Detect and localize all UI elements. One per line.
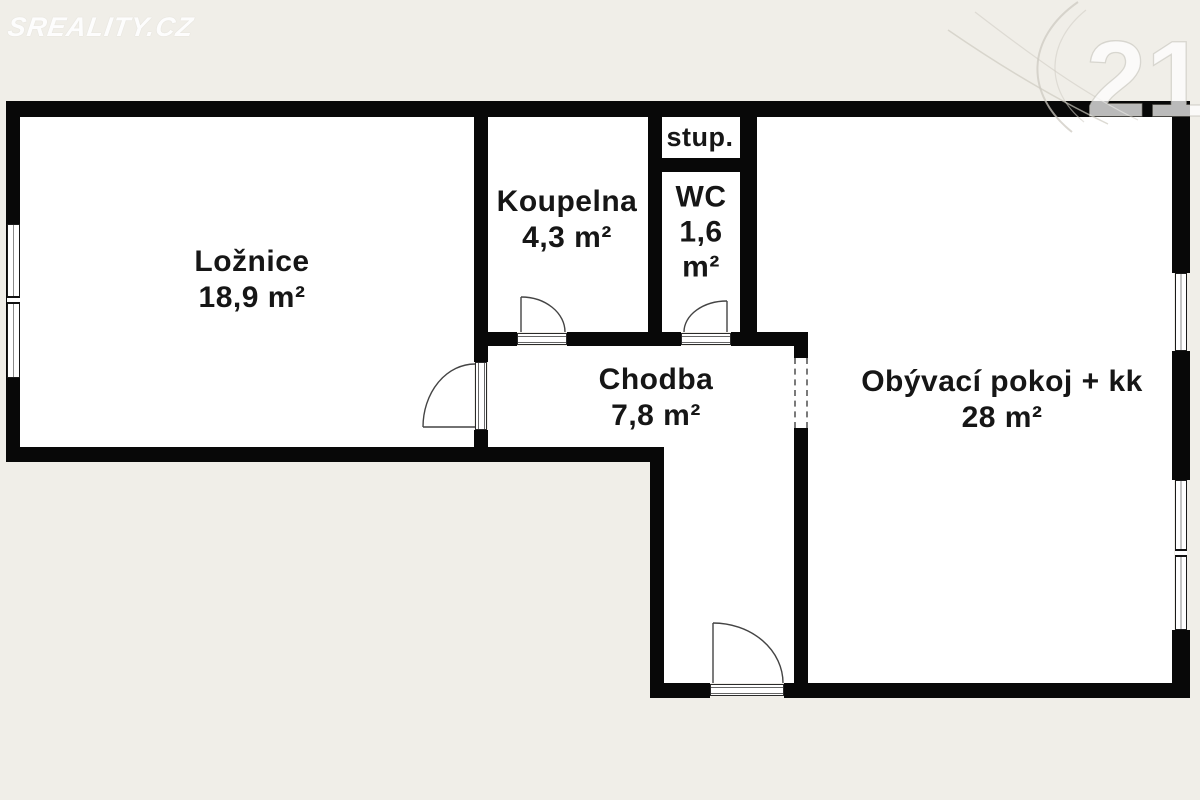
door-frame-entrance xyxy=(710,684,784,696)
wall-loznice-koupelna-upper xyxy=(474,116,488,362)
wall-top xyxy=(6,101,1190,117)
label-obyvaci: Obývací pokoj + kk 28 m² xyxy=(861,364,1143,436)
wall-wc-obyvaci xyxy=(740,116,757,332)
wall-loznice-koupelna-lower xyxy=(474,430,488,447)
wall-right-lower xyxy=(1172,630,1190,698)
wall-bottom-left-of-door xyxy=(650,683,710,698)
door-frame-wc xyxy=(681,333,731,345)
label-obyvaci-name: Obývací pokoj + kk xyxy=(861,364,1143,400)
wall-stup-bottom xyxy=(662,158,740,172)
door-frame-koupelna xyxy=(517,333,567,345)
wall-right-upper xyxy=(1172,101,1190,273)
label-obyvaci-area: 28 m² xyxy=(861,400,1143,436)
wall-corridor-left xyxy=(650,447,664,698)
wall-right-middle xyxy=(1172,351,1190,480)
label-chodba-area: 7,8 m² xyxy=(599,398,714,434)
label-koupelna: Koupelna 4,3 m² xyxy=(497,184,638,256)
label-koupelna-area: 4,3 m² xyxy=(497,220,638,256)
label-wc-name: WC xyxy=(676,180,727,215)
window-left-divider xyxy=(7,296,20,304)
label-loznice: Ložnice 18,9 m² xyxy=(194,244,309,316)
label-wc: WC 1,6 m² xyxy=(676,180,727,285)
label-chodba: Chodba 7,8 m² xyxy=(599,362,714,434)
room-obyvaci-floor-top xyxy=(757,117,1174,332)
wall-bedroom-bottom xyxy=(6,447,664,462)
window-right-lower-divider xyxy=(1175,549,1187,557)
wall-obyvaci-left-stub xyxy=(794,346,808,358)
label-stup: stup. xyxy=(667,121,734,153)
wall-bottom-right-of-door xyxy=(784,683,1190,698)
wall-chodba-top-c xyxy=(731,332,808,346)
sreality-logo-watermark: SREALITY.CZ xyxy=(6,12,196,43)
door-frame-loznice xyxy=(475,362,487,430)
label-stup-name: stup. xyxy=(667,121,734,153)
wall-chodba-top-b xyxy=(567,332,681,346)
label-wc-area-unit: m² xyxy=(676,250,727,285)
wall-chodba-top-a xyxy=(488,332,517,346)
floorplan-canvas: SREALITY.CZ 21 xyxy=(0,0,1200,800)
opening-chodba-obyvaci xyxy=(794,358,808,428)
label-chodba-name: Chodba xyxy=(599,362,714,398)
label-loznice-name: Ložnice xyxy=(194,244,309,280)
label-loznice-area: 18,9 m² xyxy=(194,280,309,316)
wall-obyvaci-left-lower xyxy=(794,428,808,698)
room-chodba-corridor-floor xyxy=(664,447,794,683)
label-wc-area-value: 1,6 xyxy=(676,215,727,250)
wall-koupelna-wc xyxy=(648,116,662,332)
label-koupelna-name: Koupelna xyxy=(497,184,638,220)
window-right-upper xyxy=(1175,273,1187,351)
